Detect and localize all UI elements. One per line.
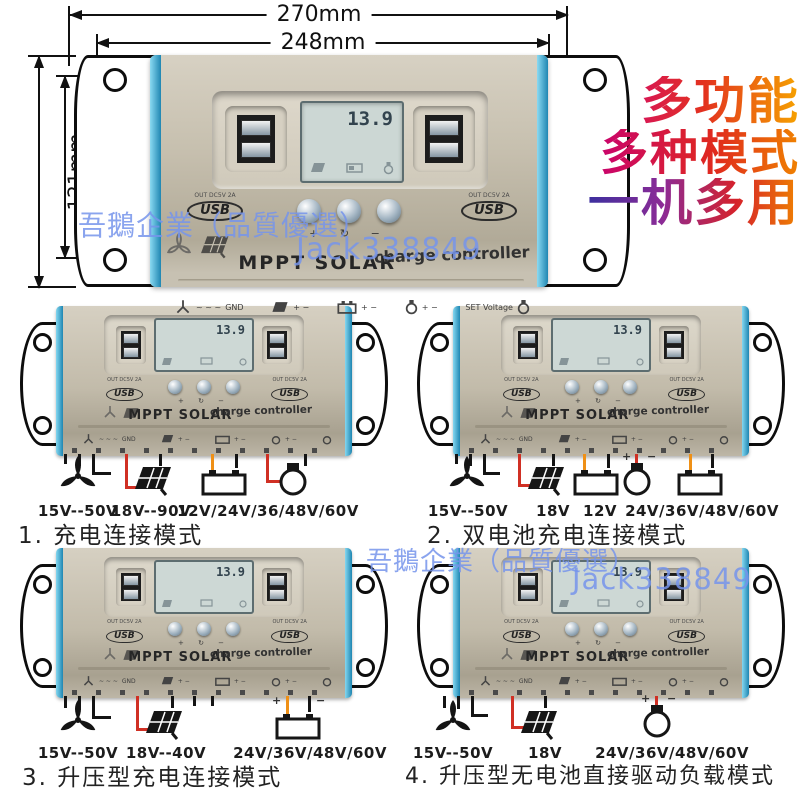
lcd-solar-icon [310, 162, 326, 174]
lcd-bulb-icon [239, 599, 247, 608]
usb-logo: USB [668, 388, 705, 401]
button-glyphs: + ↻ − [575, 397, 627, 405]
lcd-screen: 13.9 [300, 101, 404, 183]
usb-port-right [413, 106, 475, 172]
bulb-icon [621, 462, 653, 496]
screw-hole [33, 658, 52, 677]
wind-turbine-icon [56, 456, 100, 498]
screw-hole [753, 658, 772, 677]
lcd-bulb-icon [636, 357, 644, 366]
usb-port-right [262, 568, 292, 606]
usb-logo: USB [271, 630, 308, 643]
usb-logo: USB [106, 388, 143, 401]
wire [544, 696, 547, 708]
battery-icon [573, 470, 619, 496]
usb-port-right [659, 326, 689, 364]
wire [211, 696, 214, 706]
lcd-value: 13.9 [347, 108, 393, 130]
solar-panel-icon [558, 676, 571, 686]
terminal-screws [469, 448, 733, 453]
wire-battery-positive [286, 696, 289, 714]
button-glyphs: + ↻ − [575, 639, 627, 647]
solar-panel-icon [161, 676, 174, 686]
usb-logo: USB [668, 630, 705, 643]
terminal-solar: + − [271, 301, 309, 314]
bulb-icon [405, 300, 418, 315]
terminal-load-2: SET Voltage [465, 300, 530, 315]
watermark-user: Jack338849 [572, 562, 752, 596]
wire-battery-positive [211, 454, 214, 470]
lcd-screen: 13.9 [154, 560, 254, 614]
product-text: charge controller [607, 404, 709, 419]
wire-battery1-positive [583, 454, 586, 470]
blue-edge-strip [345, 548, 352, 698]
solar-panel-icon [558, 434, 571, 444]
gnd-label: GND [122, 436, 136, 443]
polarity-minus: − [316, 694, 325, 707]
usb-badge-right: OUT DC5V 2AUSB [271, 620, 308, 643]
lcd-battery-icon [597, 357, 610, 365]
usb-badge-right: OUT DC5V 2AUSB [271, 378, 308, 401]
wire [308, 696, 311, 712]
solar-panel-icon [161, 434, 174, 444]
diagram-boost-charging-mode: 13.9 + ↻ − OUT DC5V 2AUSB OUT DC5V 2AUSB… [8, 548, 406, 798]
wind-turbine-icon [499, 646, 515, 662]
lcd-solar-icon [161, 357, 173, 366]
dimension-label-270mm: 270mm [267, 3, 372, 27]
terminal-legend-row: ~ ~ ~GND + − + − + − [82, 672, 332, 690]
wind-turbine-icon [56, 700, 100, 742]
blue-edge-strip [56, 306, 63, 456]
down-button[interactable] [623, 380, 637, 394]
blue-edge-strip [150, 55, 161, 287]
diagram-charging-mode: 13.9 + ↻ − OUT DC5V 2AUSB OUT DC5V 2AUSB… [8, 306, 406, 556]
product-text: charge controller [210, 646, 312, 661]
wind-turbine-icon [102, 646, 118, 662]
battery-icon [337, 301, 357, 314]
dimension-tick [68, 6, 70, 66]
screw-hole [356, 333, 375, 352]
wind-turbine-icon [82, 433, 95, 445]
control-buttons[interactable] [168, 622, 240, 636]
screw-hole [753, 575, 772, 594]
terminal-screws [72, 690, 336, 695]
usb-logo: USB [271, 388, 308, 401]
wire [552, 454, 555, 466]
gnd-label: GND [519, 678, 533, 685]
face-divider [178, 279, 524, 282]
solar-panel-icon [524, 466, 566, 496]
lcd-solar-icon [558, 599, 570, 608]
screw-hole [356, 658, 375, 677]
diagram-caption: 3. 升压型充电连接模式 [22, 758, 282, 792]
lcd-bulb-icon [636, 599, 644, 608]
down-button[interactable] [377, 199, 401, 223]
promo-headline: 多功能 多种模式 一机多用 [588, 76, 800, 230]
face-divider [475, 667, 727, 670]
screw-hole [103, 248, 127, 272]
down-button[interactable] [226, 622, 240, 636]
blue-edge-strip [537, 55, 548, 287]
bulb-icon [271, 676, 281, 687]
usb-port-left [225, 106, 287, 172]
face-divider [78, 667, 330, 670]
gnd-label: GND [225, 303, 243, 312]
polarity-plus: + [272, 694, 281, 707]
bulb-icon [322, 676, 332, 687]
dimension-line-248mm: 248mm [97, 42, 549, 44]
promo-line-1: 多功能 [588, 76, 800, 129]
gnd-label: GND [122, 678, 136, 685]
usb-port-left [116, 568, 146, 606]
terminal-wind: ~ ~ ~ GND [174, 299, 244, 315]
solar-panel-icon [517, 710, 559, 740]
wire [193, 696, 196, 706]
lcd-bulb-icon [239, 357, 247, 366]
control-buttons[interactable] [168, 380, 240, 394]
bulb-icon [641, 704, 673, 738]
lcd-screen: 13.9 [551, 318, 651, 372]
screw-hole [33, 416, 52, 435]
battery-icon [677, 470, 723, 496]
terminal-legend-row: ~ ~ ~ GND + − + − + − SET Voltage [174, 285, 530, 329]
blue-edge-strip [742, 306, 749, 456]
diagram-dual-battery-mode: 13.9 + ↻ − OUT DC5V 2AUSB OUT DC5V 2AUSB… [405, 306, 800, 556]
usb-logo: USB [461, 201, 517, 221]
battery-icon [612, 676, 627, 686]
usb-logo: USB [106, 630, 143, 643]
display-recess: 13.9 [501, 315, 701, 375]
terminal-legend-row: ~ ~ ~GND + − + − + − [479, 672, 729, 690]
lcd-solar-icon [558, 357, 570, 366]
wind-turbine-icon [82, 675, 95, 687]
voltage-label: 12V/24V/36/48V/60V [177, 502, 359, 520]
usb-badge-right: OUT DC5V 2AUSB [668, 620, 705, 643]
usb-badge-left: OUT DC5V 2AUSB [503, 620, 540, 643]
screw-hole [430, 658, 449, 677]
dimension-line-95mm: 95mm [64, 76, 66, 258]
bulb-icon [719, 676, 729, 687]
lcd-bulb-icon [383, 162, 394, 175]
up-button[interactable] [197, 622, 211, 636]
usb-badge-right: OUT DC5V 2AUSB [668, 378, 705, 401]
terminal-battery: + − [337, 301, 377, 314]
blue-edge-strip [56, 548, 63, 698]
wire [711, 454, 714, 468]
bulb-icon [277, 462, 309, 496]
wind-turbine-icon [479, 675, 492, 687]
wire [159, 454, 162, 466]
solar-panel-icon [131, 466, 173, 496]
display-recess: 13.9 [212, 91, 488, 189]
set-button[interactable] [565, 622, 579, 636]
controller-photo-small: 13.9 + ↻ − OUT DC5V 2AUSB OUT DC5V 2AUSB… [20, 548, 388, 700]
promo-line-3: 一机多用 [588, 178, 800, 231]
solar-panel-icon [271, 301, 289, 314]
wind-turbine-icon [499, 404, 515, 420]
terminal-legend-row: ~ ~ ~GND + − + − + − [82, 430, 332, 448]
button-glyphs: + ↻ − [178, 639, 230, 647]
bulb-icon [517, 300, 530, 315]
wind-turbine-icon [445, 456, 489, 498]
usb-badge-left: OUT DC5V 2AUSB [106, 378, 143, 401]
bulb-icon [322, 434, 332, 445]
battery-icon [215, 434, 230, 444]
bulb-icon [668, 676, 678, 687]
screw-hole [753, 416, 772, 435]
battery-icon [275, 714, 321, 740]
solar-panel-icon [142, 710, 184, 740]
screw-hole [430, 416, 449, 435]
terminal-screws [72, 448, 336, 453]
terminal-legend-row: ~ ~ ~GND + − + − + − [479, 430, 729, 448]
diagram-caption: 4. 升压型无电池直接驱动负载模式 [405, 758, 775, 790]
wind-turbine-icon [431, 700, 475, 742]
wind-turbine-icon [102, 404, 118, 420]
battery-icon [612, 434, 627, 444]
control-buttons[interactable] [565, 380, 637, 394]
lcd-battery-icon [200, 599, 213, 607]
product-text: charge controller [210, 404, 312, 419]
usb-logo: USB [503, 388, 540, 401]
screw-hole [753, 333, 772, 352]
screw-hole [430, 333, 449, 352]
usb-badge-right: OUT DC5V 2A USB [450, 193, 528, 221]
face-divider [475, 425, 727, 428]
screw-hole [33, 575, 52, 594]
wire [235, 454, 238, 468]
set-voltage-label: SET Voltage [465, 303, 513, 312]
screw-hole [33, 333, 52, 352]
terminal-screws [469, 690, 733, 695]
up-button[interactable] [594, 380, 608, 394]
wire-battery2-positive [689, 454, 692, 470]
terminal-load: + − [405, 300, 438, 315]
dimension-tick [28, 286, 76, 288]
bulb-icon [271, 434, 281, 445]
dimension-line-270mm: 270mm [70, 14, 568, 16]
usb-badge-left: OUT DC5V 2AUSB [106, 620, 143, 643]
wire [607, 454, 610, 468]
product-sheet: 270mm 248mm 121mm 95mm 13.9 [0, 0, 800, 800]
usb-port-right [262, 326, 292, 364]
control-buttons[interactable] [565, 622, 637, 636]
dimension-label-248mm: 248mm [271, 31, 376, 55]
dimension-line-121mm: 121mm [38, 56, 40, 288]
display-recess: 13.9 [104, 557, 304, 617]
usb-port-left [513, 326, 543, 364]
screw-hole [103, 68, 127, 92]
bulb-icon [668, 434, 678, 445]
battery-icon [201, 470, 247, 496]
up-button[interactable] [594, 622, 608, 636]
battery-icon [215, 676, 230, 686]
lcd-battery-icon [597, 599, 610, 607]
wind-turbine-icon [174, 299, 192, 315]
dimension-tick [28, 55, 76, 57]
watermark-user: Jack338849 [296, 232, 482, 267]
set-button[interactable] [565, 380, 579, 394]
down-button[interactable] [623, 622, 637, 636]
bulb-icon [719, 434, 729, 445]
usb-badge-left: OUT DC5V 2AUSB [503, 378, 540, 401]
diagram-caption: 1. 充电连接模式 [18, 516, 203, 550]
wire [171, 696, 174, 708]
wind-turbine-icon [479, 433, 492, 445]
set-button[interactable] [168, 380, 182, 394]
lcd-battery-icon [200, 357, 213, 365]
up-button[interactable] [197, 380, 211, 394]
promo-line-2: 多种模式 [588, 129, 800, 178]
product-text: charge controller [607, 646, 709, 661]
set-button[interactable] [168, 622, 182, 636]
usb-logo: USB [503, 630, 540, 643]
button-glyphs: + ↻ − [178, 397, 230, 405]
lcd-battery-icon [346, 162, 364, 173]
screw-hole [356, 416, 375, 435]
gnd-label: GND [519, 436, 533, 443]
screw-hole [583, 248, 607, 272]
face-divider [78, 425, 330, 428]
usb-port-left [116, 326, 146, 364]
lcd-solar-icon [161, 599, 173, 608]
down-button[interactable] [226, 380, 240, 394]
